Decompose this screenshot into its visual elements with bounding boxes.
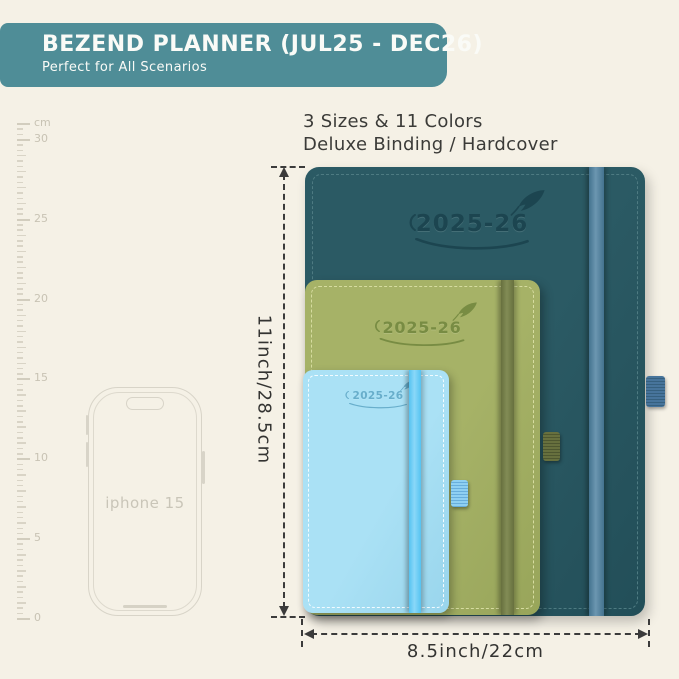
- ruler-tick: [17, 458, 30, 460]
- volume-button-down: [86, 442, 89, 467]
- ruler-tick: [17, 565, 23, 567]
- ruler-tick: [17, 182, 23, 184]
- ruler-tick: [17, 496, 23, 498]
- home-indicator: [123, 605, 167, 608]
- ruler-number-label: 5: [34, 531, 41, 544]
- ruler-tick: [17, 240, 23, 242]
- ruler-tick: [17, 618, 30, 620]
- ruler-tick: [17, 176, 23, 178]
- ruler-tick: [17, 251, 26, 253]
- ruler-tick: [17, 139, 30, 141]
- iphone-label: iphone 15: [89, 494, 201, 512]
- ruler-tick: [17, 208, 23, 210]
- ruler-number-label: 25: [34, 212, 48, 225]
- ruler-number-label: 15: [34, 372, 48, 385]
- ruler-tick: [17, 432, 23, 434]
- pen-loop: [451, 480, 468, 507]
- ruler-tick: [17, 123, 30, 125]
- ruler-tick: [17, 501, 23, 503]
- feature-line-sizes: 3 Sizes & 11 Colors: [303, 110, 558, 133]
- arrow-left-icon: [304, 629, 314, 639]
- ruler-tick: [17, 261, 23, 263]
- ruler-tick: [17, 448, 23, 450]
- ruler-tick: [17, 144, 23, 146]
- logo-underline-swash: [378, 338, 466, 347]
- ruler-tick: [17, 150, 23, 152]
- logo-paren-mark: [407, 214, 416, 231]
- ruler-tick: [17, 331, 26, 333]
- ruler-tick: [17, 293, 23, 295]
- ruler-tick: [17, 256, 23, 258]
- ruler-tick: [17, 426, 26, 428]
- ruler-tick: [17, 591, 23, 593]
- planner-cover: 2025-26: [303, 370, 449, 613]
- ruler-tick: [17, 309, 23, 311]
- feather-icon: [509, 188, 547, 216]
- power-button: [202, 451, 205, 484]
- height-dimension-line: [283, 174, 285, 608]
- ruler-tick: [17, 416, 23, 418]
- ruler-tick: [17, 224, 23, 226]
- ruler-tick: [17, 607, 23, 609]
- ruler-tick: [17, 134, 23, 136]
- dynamic-island: [126, 397, 164, 410]
- product-title: BEZEND PLANNER (JUL25 - DEC26): [42, 32, 447, 57]
- ruler-tick: [17, 187, 26, 189]
- ruler-tick: [17, 235, 26, 237]
- ruler-tick: [17, 570, 26, 572]
- ruler-tick: [17, 474, 26, 476]
- ruler-number-label: 0: [34, 611, 41, 624]
- ruler-tick: [17, 480, 23, 482]
- ruler-number-label: 10: [34, 452, 48, 465]
- ruler-tick: [17, 464, 23, 466]
- ruler-tick: [17, 581, 23, 583]
- header-banner: BEZEND PLANNER (JUL25 - DEC26) Perfect f…: [0, 23, 447, 87]
- ruler-tick: [17, 410, 26, 412]
- ruler-tick: [17, 299, 30, 301]
- ruler-tick: [17, 245, 23, 247]
- feature-text: 3 Sizes & 11 Colors Deluxe Binding / Har…: [303, 110, 558, 156]
- planner-logo: 2025-26: [348, 390, 408, 409]
- ruler-tick: [17, 171, 26, 173]
- height-cap-bottom: [271, 616, 305, 618]
- ruler-tick: [17, 368, 23, 370]
- ruler-tick: [17, 336, 23, 338]
- ruler-tick: [17, 384, 23, 386]
- ruler-tick: [17, 613, 23, 615]
- ruler-tick: [17, 559, 23, 561]
- ruler-tick: [17, 128, 23, 130]
- planner-logo: 2025-26: [378, 318, 466, 347]
- ruler-tick: [17, 315, 26, 317]
- ruler-unit-label: cm: [34, 116, 51, 129]
- ruler-tick: [17, 198, 23, 200]
- height-cap-top: [271, 166, 305, 168]
- ruler-tick: [17, 554, 26, 556]
- product-subtitle: Perfect for All Scenarios: [42, 60, 447, 75]
- pen-loop: [543, 432, 560, 461]
- ruler-tick: [17, 277, 23, 279]
- ruler-tick: [17, 363, 26, 365]
- ruler-tick: [17, 389, 23, 391]
- ruler-tick: [17, 533, 23, 535]
- planner-small: 2025-26: [303, 370, 449, 613]
- ruler-tick: [17, 453, 23, 455]
- logo-paren-mark: [373, 320, 380, 332]
- ruler-tick: [17, 528, 23, 530]
- stitch-border: [308, 375, 444, 608]
- ruler-tick: [17, 469, 23, 471]
- ruler-tick: [17, 357, 23, 359]
- ruler-tick: [17, 485, 23, 487]
- ruler-tick: [17, 166, 23, 168]
- ruler-tick: [17, 325, 23, 327]
- ruler-tick: [17, 575, 23, 577]
- ruler-tick: [17, 522, 26, 524]
- logo-underline-swash: [348, 403, 408, 409]
- ruler-tick: [17, 352, 23, 354]
- ruler-tick: [17, 160, 23, 162]
- ruler-tick: [17, 442, 26, 444]
- ruler-tick: [17, 538, 30, 540]
- ruler-tick: [17, 373, 23, 375]
- logo-underline-swash: [413, 238, 531, 251]
- ruler-tick: [17, 586, 26, 588]
- ruler-tick: [17, 288, 23, 290]
- ruler-tick: [17, 490, 26, 492]
- elastic-band: [501, 280, 514, 615]
- width-dimension-line: [311, 633, 641, 635]
- ruler-tick: [17, 304, 23, 306]
- pen-loop: [646, 376, 665, 407]
- elastic-band: [589, 167, 604, 616]
- ruler-tick: [17, 549, 23, 551]
- ruler-tick: [17, 405, 23, 407]
- ruler-tick: [17, 320, 23, 322]
- feature-line-binding: Deluxe Binding / Hardcover: [303, 133, 558, 156]
- iphone-outline: iphone 15: [88, 387, 202, 616]
- arrow-right-icon: [638, 629, 648, 639]
- ruler-tick: [17, 192, 23, 194]
- ruler-tick: [17, 267, 26, 269]
- arrow-down-icon: [279, 606, 289, 616]
- feather-icon: [451, 301, 479, 321]
- ruler-tick: [17, 597, 23, 599]
- ruler-tick: [17, 272, 23, 274]
- ruler-tick: [17, 283, 26, 285]
- ruler-tick: [17, 400, 23, 402]
- ruler-tick: [17, 602, 26, 604]
- height-label: 11inch/28.5cm: [254, 305, 275, 475]
- arrow-up-icon: [279, 167, 289, 177]
- ruler-tick: [17, 229, 23, 231]
- ruler-tick: [17, 378, 30, 380]
- ruler-tick: [17, 219, 30, 221]
- ruler-number-label: 20: [34, 292, 48, 305]
- elastic-band: [409, 370, 421, 613]
- ruler-tick: [17, 421, 23, 423]
- ruler-tick: [17, 341, 23, 343]
- product-infographic: BEZEND PLANNER (JUL25 - DEC26) Perfect f…: [0, 0, 679, 679]
- ruler-tick: [17, 543, 23, 545]
- ruler: 051015202530cm: [0, 0, 60, 679]
- ruler-tick: [17, 437, 23, 439]
- ruler-number-label: 30: [34, 132, 48, 145]
- ruler-tick: [17, 512, 23, 514]
- ruler-tick: [17, 203, 26, 205]
- volume-button-up: [86, 415, 89, 435]
- ruler-tick: [17, 517, 23, 519]
- logo-paren-mark: [344, 391, 349, 399]
- ruler-tick: [17, 155, 26, 157]
- ruler-tick: [17, 506, 26, 508]
- ruler-tick: [17, 213, 23, 215]
- ruler-tick: [17, 347, 26, 349]
- width-label: 8.5inch/22cm: [302, 641, 649, 662]
- ruler-tick: [17, 394, 26, 396]
- planner-logo: 2025-26: [413, 211, 531, 251]
